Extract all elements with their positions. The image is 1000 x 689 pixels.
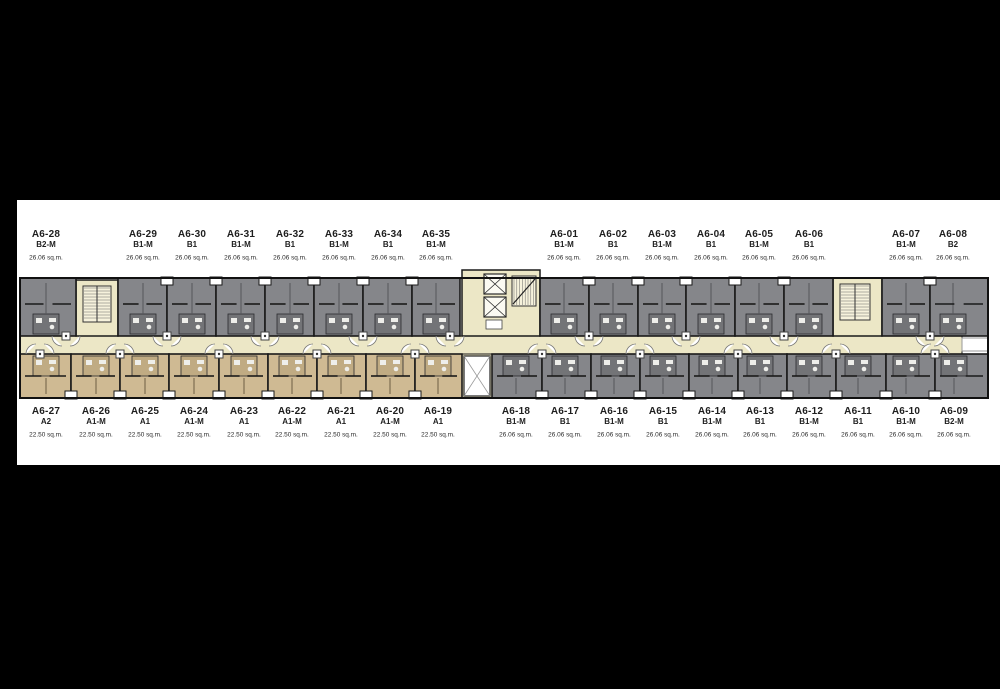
unit-label-A6-24: A6-24A1-M22.50 sq.m. [168,406,220,439]
unit-id: A6-35 [410,229,462,240]
unit-label-A6-34: A6-34B126.06 sq.m. [362,229,414,262]
unit-area: 26.06 sq.m. [785,432,833,439]
unit-label-A6-08: A6-08B226.06 sq.m. [927,229,979,262]
unit-area: 26.06 sq.m. [687,255,735,262]
unit-label-A6-04: A6-04B126.06 sq.m. [685,229,737,262]
unit-label-A6-30: A6-30B126.06 sq.m. [166,229,218,262]
unit-area: 26.06 sq.m. [315,255,363,262]
corridor-exit [962,338,988,351]
unit-type: B1-M [117,241,169,250]
unit-id: A6-06 [783,229,835,240]
unit-type: A1-M [364,418,416,427]
unit-type: A2 [20,418,72,427]
unit-area: 26.06 sq.m. [168,255,216,262]
unit-type: B1 [264,241,316,250]
unit-area: 26.06 sq.m. [735,255,783,262]
unit-id: A6-02 [587,229,639,240]
unit-id: A6-23 [218,406,270,417]
unit-type: B1 [587,241,639,250]
unit-area: 22.50 sq.m. [72,432,120,439]
unit-room-A6-08 [930,278,988,336]
unit-room-A6-24 [169,354,219,398]
unit-type: B1-M [410,241,462,250]
unit-type: A1-M [168,418,220,427]
unit-id: A6-24 [168,406,220,417]
unit-room-A6-07 [882,278,930,336]
unit-room-A6-06 [784,278,833,336]
unit-label-A6-18: A6-18B1-M26.06 sq.m. [490,406,542,439]
unit-area: 26.06 sq.m. [540,255,588,262]
unit-label-A6-21: A6-21A122.50 sq.m. [315,406,367,439]
unit-area: 26.06 sq.m. [590,432,638,439]
unit-id: A6-19 [412,406,464,417]
unit-label-A6-22: A6-22A1-M22.50 sq.m. [266,406,318,439]
unit-room-A6-13 [738,354,787,398]
unit-id: A6-14 [686,406,738,417]
unit-id: A6-12 [783,406,835,417]
unit-label-A6-26: A6-26A1-M22.50 sq.m. [70,406,122,439]
unit-room-A6-02 [589,278,638,336]
unit-area: 22.50 sq.m. [268,432,316,439]
unit-label-A6-32: A6-32B126.06 sq.m. [264,229,316,262]
unit-label-A6-19: A6-19A122.50 sq.m. [412,406,464,439]
unit-type: B1 [637,418,689,427]
unit-area: 26.06 sq.m. [217,255,265,262]
unit-type: B1 [685,241,737,250]
unit-label-A6-13: A6-13B126.06 sq.m. [734,406,786,439]
unit-label-A6-12: A6-12B1-M26.06 sq.m. [783,406,835,439]
unit-area: 26.06 sq.m. [119,255,167,262]
unit-label-A6-14: A6-14B1-M26.06 sq.m. [686,406,738,439]
unit-label-A6-25: A6-25A122.50 sq.m. [119,406,171,439]
unit-label-A6-33: A6-33B1-M26.06 sq.m. [313,229,365,262]
unit-type: B1-M [588,418,640,427]
unit-id: A6-13 [734,406,786,417]
unit-id: A6-08 [927,229,979,240]
unit-id: A6-31 [215,229,267,240]
unit-id: A6-07 [880,229,932,240]
unit-id: A6-17 [539,406,591,417]
unit-type: B1-M [538,241,590,250]
unit-area: 26.06 sq.m. [930,432,978,439]
unit-id: A6-03 [636,229,688,240]
floorplan-panel: A6-28B2-M26.06 sq.m.A6-29B1-M26.06 sq.m.… [17,200,1000,465]
unit-label-A6-35: A6-35B1-M26.06 sq.m. [410,229,462,262]
unit-id: A6-25 [119,406,171,417]
unit-type: B1 [362,241,414,250]
unit-id: A6-34 [362,229,414,240]
unit-area: 22.50 sq.m. [366,432,414,439]
unit-room-A6-19 [415,354,462,398]
unit-id: A6-16 [588,406,640,417]
unit-id: A6-22 [266,406,318,417]
unit-id: A6-28 [20,229,72,240]
unit-type: A1 [412,418,464,427]
unit-type: B1-M [783,418,835,427]
unit-id: A6-32 [264,229,316,240]
unit-type: B1 [832,418,884,427]
unit-room-A6-22 [268,354,317,398]
unit-type: B1-M [880,241,932,250]
unit-type: B1-M [880,418,932,427]
unit-area: 26.06 sq.m. [785,255,833,262]
unit-type: A1 [119,418,171,427]
unit-label-A6-03: A6-03B1-M26.06 sq.m. [636,229,688,262]
unit-area: 22.50 sq.m. [22,432,70,439]
unit-room-A6-27 [20,354,71,398]
floorplan-screenshot: A6-28B2-M26.06 sq.m.A6-29B1-M26.06 sq.m.… [0,0,1000,689]
unit-label-A6-20: A6-20A1-M22.50 sq.m. [364,406,416,439]
unit-room-A6-16 [591,354,640,398]
unit-room-A6-15 [640,354,689,398]
unit-label-A6-09: A6-09B2-M26.06 sq.m. [928,406,980,439]
unit-area: 26.06 sq.m. [266,255,314,262]
unit-area: 26.06 sq.m. [834,432,882,439]
unit-label-A6-17: A6-17B126.06 sq.m. [539,406,591,439]
unit-type: B1-M [215,241,267,250]
unit-area: 26.06 sq.m. [589,255,637,262]
unit-id: A6-21 [315,406,367,417]
unit-type: A1-M [266,418,318,427]
unit-type: B1 [539,418,591,427]
unit-room-A6-01 [540,278,589,336]
unit-area: 22.50 sq.m. [170,432,218,439]
unit-type: B1-M [636,241,688,250]
unit-room-A6-32 [265,278,314,336]
unit-type: B2-M [20,241,72,250]
unit-id: A6-15 [637,406,689,417]
unit-type: B1-M [490,418,542,427]
unit-id: A6-11 [832,406,884,417]
unit-label-A6-23: A6-23A122.50 sq.m. [218,406,270,439]
unit-id: A6-30 [166,229,218,240]
unit-type: A1 [315,418,367,427]
unit-id: A6-09 [928,406,980,417]
unit-room-A6-14 [689,354,738,398]
unit-label-A6-06: A6-06B126.06 sq.m. [783,229,835,262]
unit-type: B1 [166,241,218,250]
unit-room-A6-21 [317,354,366,398]
unit-room-A6-11 [836,354,886,398]
unit-type: A1-M [70,418,122,427]
unit-room-A6-03 [638,278,686,336]
unit-label-A6-31: A6-31B1-M26.06 sq.m. [215,229,267,262]
unit-type: B2 [927,241,979,250]
unit-label-A6-01: A6-01B1-M26.06 sq.m. [538,229,590,262]
unit-id: A6-18 [490,406,542,417]
unit-label-A6-27: A6-27A222.50 sq.m. [20,406,72,439]
unit-area: 26.06 sq.m. [882,432,930,439]
unit-label-A6-29: A6-29B1-M26.06 sq.m. [117,229,169,262]
core-service-box [486,320,502,329]
unit-area: 22.50 sq.m. [220,432,268,439]
unit-label-A6-05: A6-05B1-M26.06 sq.m. [733,229,785,262]
unit-area: 26.06 sq.m. [541,432,589,439]
unit-room-A6-20 [366,354,415,398]
unit-type: B2-M [928,418,980,427]
unit-area: 26.06 sq.m. [688,432,736,439]
unit-area: 22.50 sq.m. [414,432,462,439]
unit-label-A6-15: A6-15B126.06 sq.m. [637,406,689,439]
unit-id: A6-33 [313,229,365,240]
unit-room-A6-26 [71,354,120,398]
unit-room-A6-12 [787,354,836,398]
unit-label-A6-28: A6-28B2-M26.06 sq.m. [20,229,72,262]
unit-room-A6-28 [20,278,76,336]
unit-id: A6-10 [880,406,932,417]
unit-room-A6-31 [216,278,265,336]
unit-area: 26.06 sq.m. [929,255,977,262]
unit-area: 26.06 sq.m. [22,255,70,262]
unit-type: B1-M [733,241,785,250]
unit-area: 26.06 sq.m. [412,255,460,262]
unit-label-A6-02: A6-02B126.06 sq.m. [587,229,639,262]
unit-room-A6-33 [314,278,363,336]
unit-id: A6-20 [364,406,416,417]
unit-room-A6-04 [686,278,735,336]
unit-area: 22.50 sq.m. [317,432,365,439]
unit-room-A6-35 [412,278,460,336]
unit-room-A6-09 [935,354,988,398]
unit-id: A6-05 [733,229,785,240]
unit-type: A1 [218,418,270,427]
unit-area: 26.06 sq.m. [882,255,930,262]
unit-id: A6-27 [20,406,72,417]
unit-label-A6-11: A6-11B126.06 sq.m. [832,406,884,439]
unit-room-A6-25 [120,354,169,398]
unit-room-A6-30 [167,278,216,336]
unit-room-A6-18 [492,354,542,398]
unit-type: B1 [734,418,786,427]
unit-room-A6-29 [118,278,167,336]
unit-id: A6-01 [538,229,590,240]
unit-label-A6-10: A6-10B1-M26.06 sq.m. [880,406,932,439]
unit-type: B1-M [686,418,738,427]
unit-label-A6-07: A6-07B1-M26.06 sq.m. [880,229,932,262]
unit-area: 22.50 sq.m. [121,432,169,439]
unit-id: A6-26 [70,406,122,417]
unit-area: 26.06 sq.m. [492,432,540,439]
unit-area: 26.06 sq.m. [639,432,687,439]
unit-room-A6-05 [735,278,784,336]
unit-area: 26.06 sq.m. [638,255,686,262]
unit-area: 26.06 sq.m. [364,255,412,262]
unit-label-A6-16: A6-16B1-M26.06 sq.m. [588,406,640,439]
unit-room-A6-10 [886,354,935,398]
unit-id: A6-29 [117,229,169,240]
unit-type: B1 [783,241,835,250]
unit-id: A6-04 [685,229,737,240]
unit-area: 26.06 sq.m. [736,432,784,439]
unit-room-A6-23 [219,354,268,398]
unit-room-A6-17 [542,354,591,398]
unit-type: B1-M [313,241,365,250]
unit-room-A6-34 [363,278,412,336]
